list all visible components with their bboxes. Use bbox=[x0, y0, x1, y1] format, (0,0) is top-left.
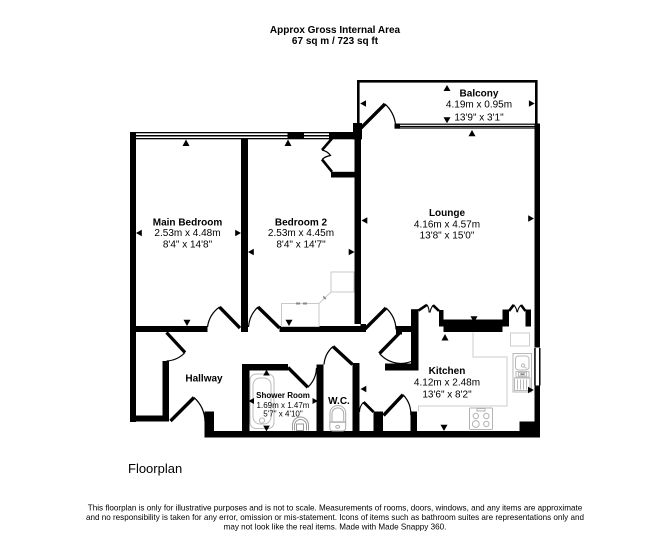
svg-text:67 sq m / 723 sq ft: 67 sq m / 723 sq ft bbox=[292, 36, 379, 47]
svg-text:5'7" x 4'10": 5'7" x 4'10" bbox=[263, 409, 303, 418]
svg-text:and no responsibility is taken: and no responsibility is taken for any e… bbox=[86, 513, 584, 522]
svg-text:This floorplan is only for ill: This floorplan is only for illustrative … bbox=[88, 503, 583, 512]
svg-text:Floorplan: Floorplan bbox=[128, 461, 182, 476]
svg-text:8'4" x 14'8": 8'4" x 14'8" bbox=[163, 239, 213, 250]
svg-text:2.53m x 4.48m: 2.53m x 4.48m bbox=[154, 228, 220, 239]
svg-text:13'6" x 8'2": 13'6" x 8'2" bbox=[422, 390, 472, 401]
svg-text:Hallway: Hallway bbox=[185, 374, 223, 385]
svg-text:4.19m x 0.95m: 4.19m x 0.95m bbox=[446, 100, 512, 111]
svg-text:may not look like the real ite: may not look like the real items. Made w… bbox=[224, 522, 447, 531]
svg-text:Kitchen: Kitchen bbox=[429, 366, 466, 377]
svg-text:4.12m x 2.48m: 4.12m x 2.48m bbox=[414, 378, 480, 389]
svg-text:W.C.: W.C. bbox=[328, 396, 350, 407]
svg-text:4.16m x 4.57m: 4.16m x 4.57m bbox=[414, 219, 480, 230]
svg-text:Balcony: Balcony bbox=[460, 89, 499, 100]
svg-text:Bedroom 2: Bedroom 2 bbox=[275, 217, 328, 228]
svg-text:8'4" x 14'7": 8'4" x 14'7" bbox=[276, 239, 326, 250]
svg-text:Approx Gross Internal Area: Approx Gross Internal Area bbox=[270, 25, 401, 36]
svg-text:Shower Room: Shower Room bbox=[256, 391, 310, 400]
svg-text:Main Bedroom: Main Bedroom bbox=[153, 217, 223, 228]
svg-text:13'9" x 3'1": 13'9" x 3'1" bbox=[454, 112, 504, 123]
svg-text:Lounge: Lounge bbox=[429, 208, 466, 219]
svg-text:2.53m x 4.45m: 2.53m x 4.45m bbox=[268, 228, 334, 239]
svg-text:13'8" x 15'0": 13'8" x 15'0" bbox=[420, 230, 475, 241]
